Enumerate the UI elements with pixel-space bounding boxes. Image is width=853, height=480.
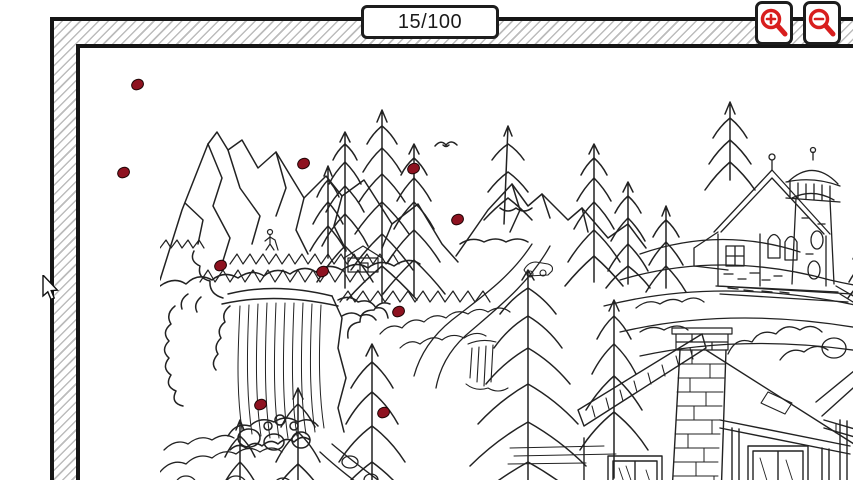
pond [410,446,616,480]
mountain-range [160,132,646,286]
progress-counter: 15/100 [361,5,499,39]
progress-counter-label: 15/100 [398,11,462,34]
cottage [578,328,853,480]
creek-path [320,244,550,480]
zoom-out-button[interactable] [803,1,841,45]
castle-lighthouse [694,148,853,311]
flying-bird [435,142,457,147]
pine-trees-top [310,102,853,306]
game-viewport: 15/100 [0,0,853,480]
puzzle-canvas[interactable] [76,44,853,480]
magnifier-minus-icon [807,7,837,39]
line-art-scene [160,96,853,480]
waterfall [165,251,391,450]
zoom-in-button[interactable] [755,1,793,45]
magnifier-plus-icon [759,7,789,39]
hiker [265,230,278,251]
